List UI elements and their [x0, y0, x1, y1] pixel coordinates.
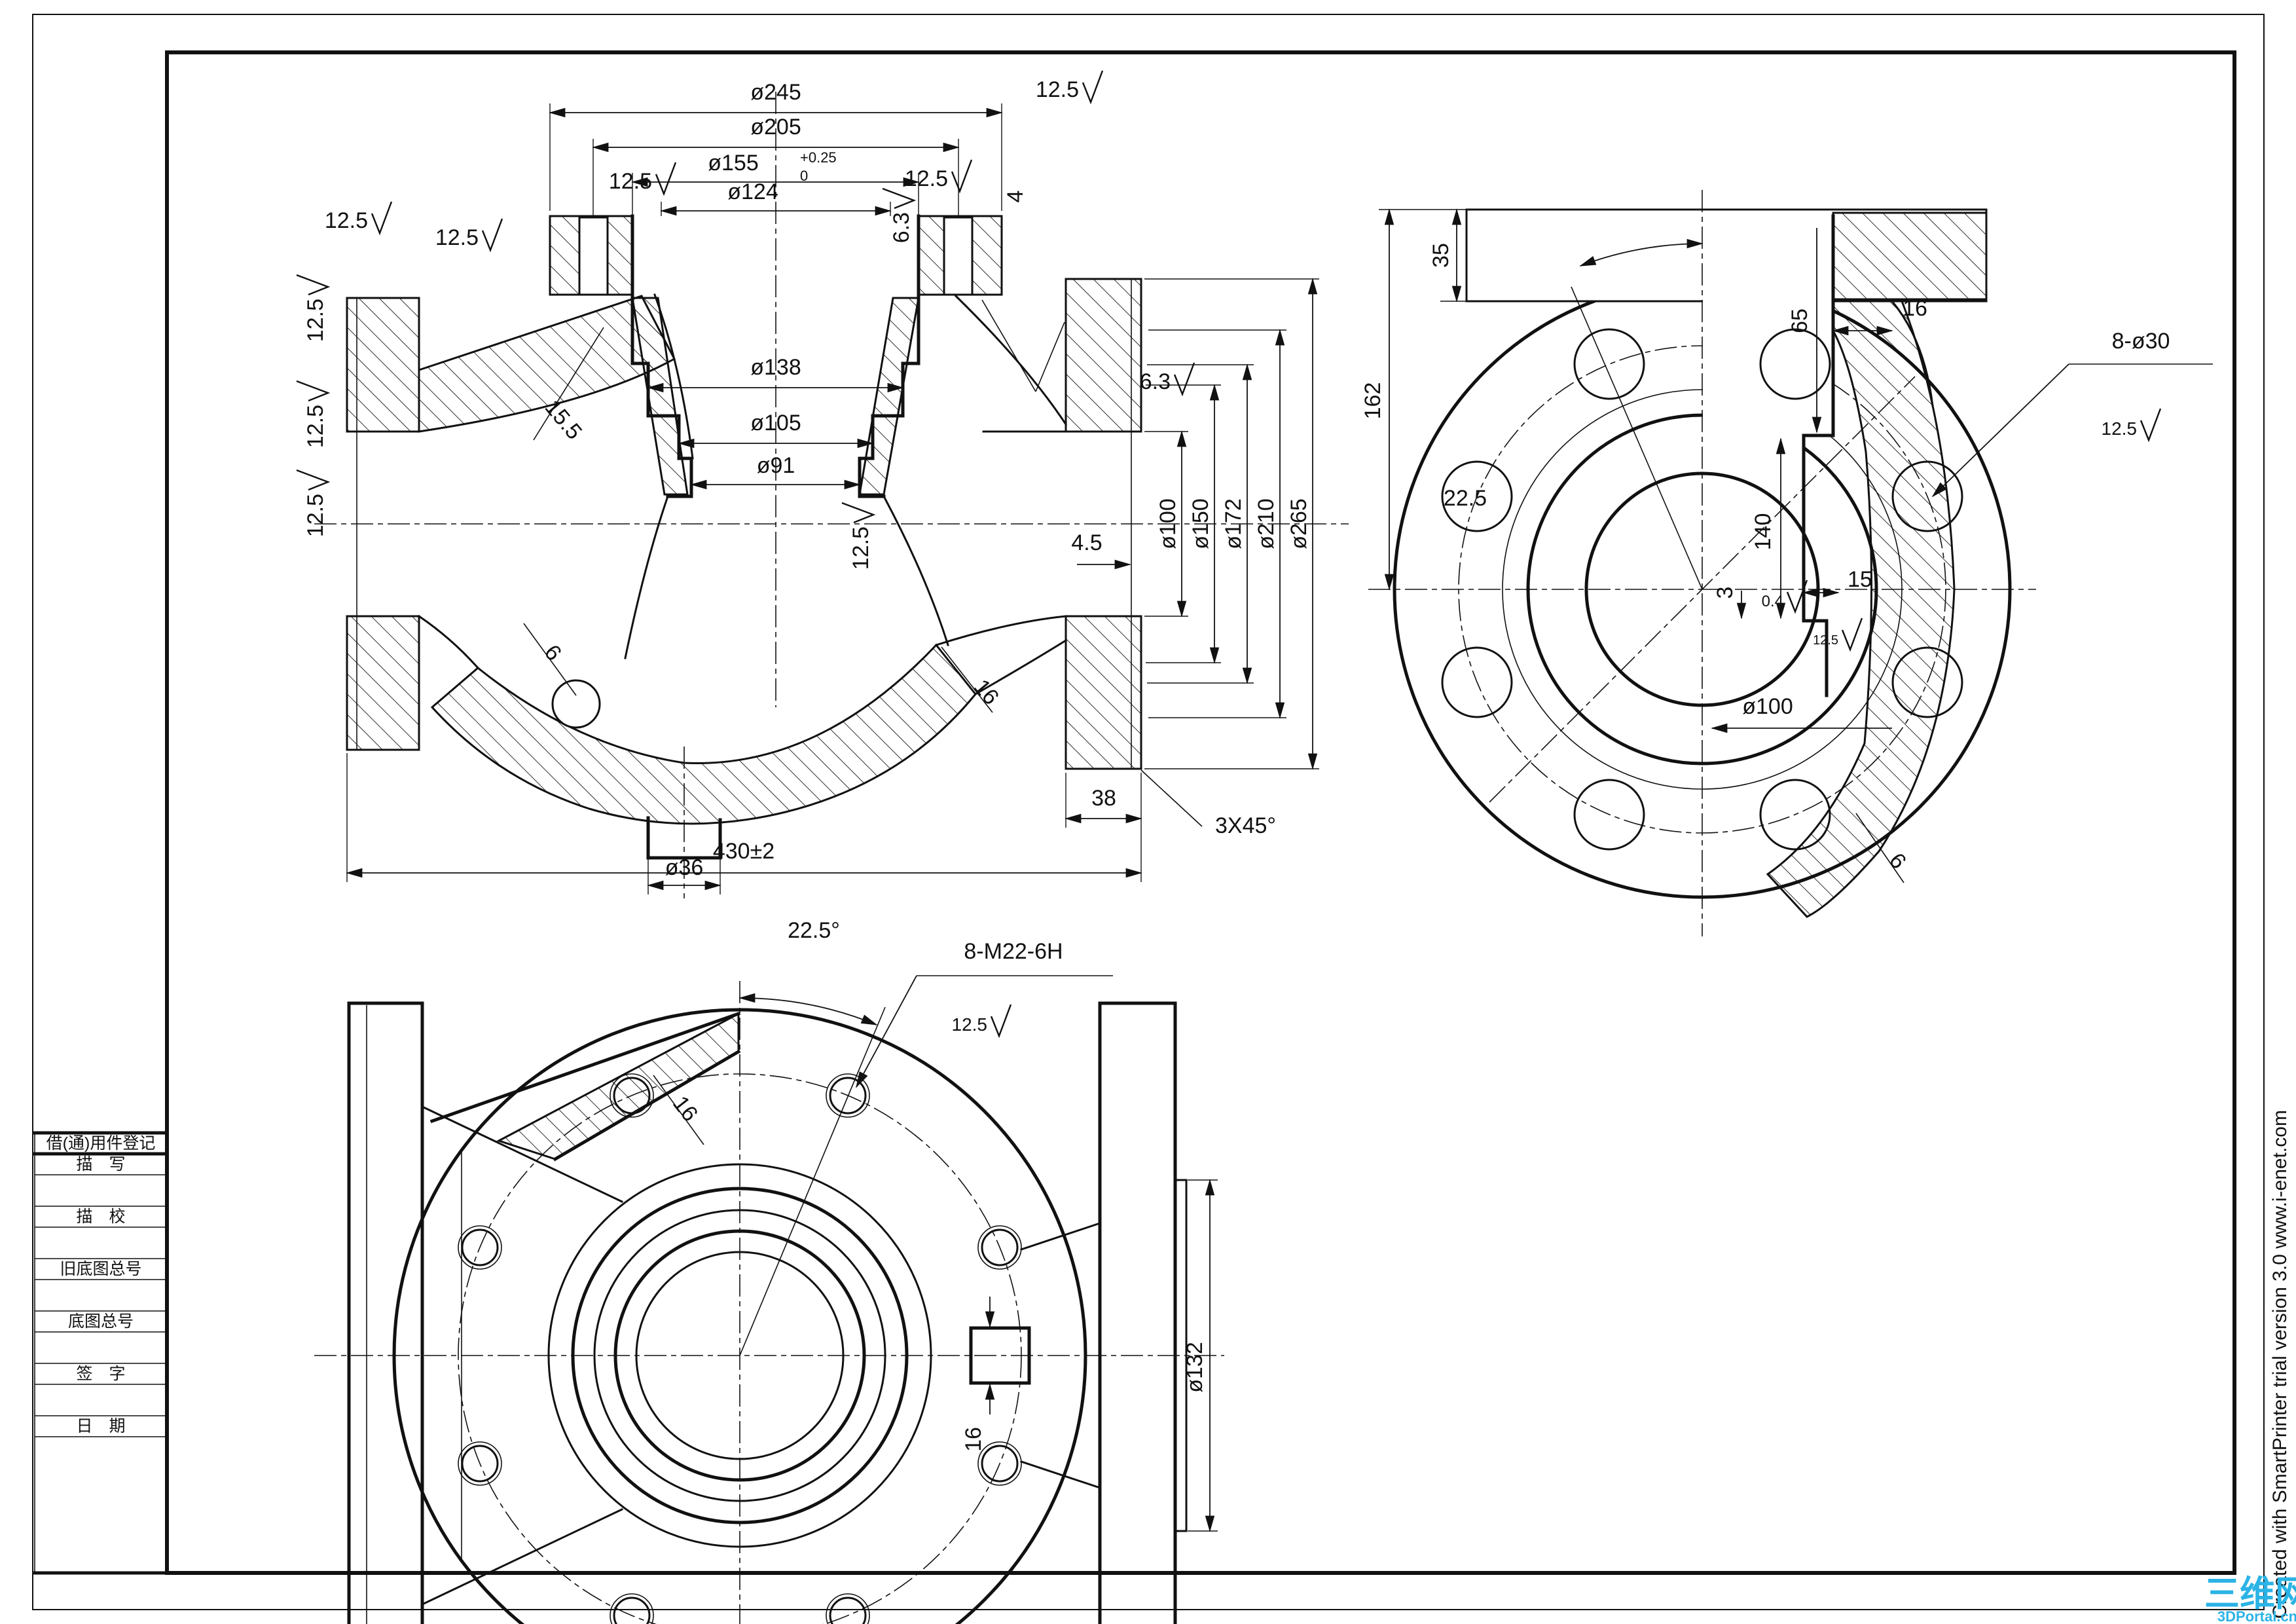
fv-fin-left-3-value: 12.5: [303, 494, 328, 537]
right-flange-upper: [1066, 279, 1141, 432]
fv-dim-d265-value: ø265: [1286, 498, 1311, 549]
fv-fin-flange-top-l-value: 12.5: [609, 169, 652, 194]
top-flange-side-hatch: [1833, 213, 1986, 299]
left-flange-lower: [347, 616, 419, 750]
fv-dim-d105: ø105: [750, 411, 801, 435]
sv-dim-35-value: 35: [1429, 243, 1453, 268]
fv-dim-d210-value: ø210: [1254, 498, 1279, 549]
bv-fin-m22-125-value: 12.5: [952, 1014, 988, 1035]
bv-dim-8-m22-value: 8-M22-6H: [964, 939, 1063, 964]
fv-fin-flange-top-r-value: 12.5: [905, 166, 948, 191]
core-hole: [553, 680, 600, 728]
fv-dim-d124-value: ø124: [727, 179, 778, 204]
sv-dim-15: 15: [1848, 567, 1872, 592]
fv-fin-top-left-1-value: 12.5: [325, 208, 368, 233]
sv-dim-3-value: 3: [1713, 587, 1738, 599]
fv-dim-d155-tol-up: +0.25: [800, 149, 837, 166]
fv-fin-seat-value: 12.5: [848, 526, 873, 570]
sv-fin-holes-125: 12.5: [2102, 409, 2161, 440]
fv-dim-6-wall-value: 6: [539, 640, 566, 665]
fv-dim-d172-value: ø172: [1221, 498, 1246, 549]
bv-dim-d132: ø132: [1182, 1342, 1207, 1393]
bv-dim-16-boss: 16: [961, 1427, 986, 1452]
title-block-row-base-no: 底图总号: [68, 1312, 134, 1331]
sv-dim-d100-value: ø100: [1742, 694, 1793, 719]
bv-dim-22-5deg-value: 22.5°: [788, 918, 840, 943]
fv-dim-d155-tol-up-value: +0.25: [800, 149, 837, 166]
bv-dim-16-wedge: 16: [668, 1092, 702, 1126]
fv-dim-d100: ø100: [1156, 498, 1180, 549]
surface-finish-icon: [883, 189, 914, 208]
fv-dim-d205: ø205: [750, 115, 801, 139]
title-block-row-trace: 描 写: [76, 1155, 125, 1173]
bv-dim-16-boss-value: 16: [961, 1427, 986, 1452]
surface-finish-icon: [1083, 71, 1102, 102]
fv-dim-d150-value: ø150: [1188, 498, 1213, 549]
brand-watermark: 三维网: [2204, 1574, 2296, 1614]
fv-dim-6-wall: 6: [539, 640, 566, 665]
bottom-dimensions: [653, 976, 1218, 1531]
sv-dim-16-value: 16: [1903, 296, 1927, 321]
title-block-row-check: 描 校: [76, 1208, 125, 1226]
fv-fin-bore-63-value: 6.3: [889, 212, 914, 243]
fv-dim-d100-value: ø100: [1156, 498, 1180, 549]
fv-fin-left-3: 12.5: [297, 470, 328, 537]
surface-finish-icon: [483, 219, 502, 250]
surface-finish-icon: [372, 202, 392, 233]
bottom-bowl-shell: [432, 645, 975, 824]
right-pipe-flange: [1100, 1003, 1175, 1624]
hub-wall-right: [860, 298, 919, 494]
bottom-view: 22.5°8-M22-6H12.51616ø132: [314, 918, 1224, 1624]
fv-dim-d138: ø138: [750, 355, 801, 380]
sv-dim-65-value: 65: [1787, 308, 1812, 333]
fv-dim-430-value: 430±2: [713, 839, 774, 864]
sv-dim-65: 65: [1787, 308, 1812, 333]
fv-dim-4-5-value: 4.5: [1071, 530, 1102, 555]
fv-dim-d124: ø124: [727, 179, 778, 204]
fv-dim-d36: ø36: [665, 855, 704, 880]
fv-dim-d172: ø172: [1221, 498, 1246, 549]
fv-fin-face-63-value: 6.3: [1140, 369, 1171, 394]
brand-watermark-sub: 3DPortal.cn: [2217, 1608, 2296, 1624]
surface-finish-icon: [1842, 618, 1862, 650]
fv-dim-d210: ø210: [1254, 498, 1279, 549]
fv-fin-top-right-value: 12.5: [1036, 77, 1079, 102]
surface-finish-icon: [952, 160, 972, 191]
surface-finish-icon: [1175, 363, 1194, 394]
fv-dim-d105-value: ø105: [750, 411, 801, 435]
surface-finish-icon: [2141, 409, 2160, 440]
sv-dim-16: 16: [1903, 296, 1927, 321]
fv-dim-430: 430±2: [713, 839, 774, 864]
sv-dim-140-value: 140: [1751, 513, 1776, 551]
smartprinter-watermark: Created with SmartPrinter trial version …: [2269, 1110, 2291, 1619]
sv-dim-8-d30-value: 8-ø30: [2112, 329, 2170, 354]
title-block: 借(通)用件登记 描 写 描 校 旧底图总号 底图总号 签 字 日 期: [35, 1133, 167, 1573]
fv-dim-d205-value: ø205: [750, 115, 801, 139]
side-section-view: 1623522.5ø10065161401530.412.58-ø3012.56: [1360, 190, 2213, 936]
fv-fin-face-63: 6.3: [1140, 363, 1194, 394]
title-block-row-old-no: 旧底图总号: [60, 1260, 141, 1278]
fv-dim-d150: ø150: [1188, 498, 1213, 549]
fv-dim-d36-value: ø36: [665, 855, 704, 880]
watermarks: Created with SmartPrinter trial version …: [2204, 1110, 2296, 1624]
fv-fin-top-right: 12.5: [1036, 71, 1102, 102]
fv-dim-d155: ø155: [708, 151, 759, 175]
left-pipe-flange: [349, 1003, 422, 1624]
surface-finish-icon: [297, 381, 328, 401]
drawing-canvas: 借(通)用件登记 描 写 描 校 旧底图总号 底图总号 签 字 日 期: [0, 0, 2296, 1624]
sv-dim-d100: ø100: [1742, 694, 1793, 719]
fv-dim-d155-tol-dn-value: 0: [800, 168, 808, 184]
sv-dim-35: 35: [1429, 243, 1453, 268]
sv-fin-step-04-value: 0.4: [1762, 593, 1783, 610]
top-flange-bolt-slot-right: [944, 217, 972, 295]
fv-fin-bore-63: 6.3: [883, 189, 914, 243]
bv-dim-22-5deg: 22.5°: [788, 918, 840, 943]
title-block-header: 借(通)用件登记: [46, 1134, 156, 1153]
sv-dim-140: 140: [1751, 513, 1776, 551]
fv-dim-d138-value: ø138: [750, 355, 801, 380]
sv-dim-6-wall: 6: [1884, 848, 1911, 874]
sv-dim-15-value: 15: [1848, 567, 1872, 592]
fv-dim-d245: ø245: [750, 80, 801, 105]
surface-finish-icon: [656, 162, 676, 194]
top-flange-bolt-slot-left: [579, 217, 608, 295]
fv-dim-4-5: 4.5: [1071, 530, 1102, 555]
front-section-view: ø245ø205ø155+0.250ø124ø138ø105ø9115.5616…: [297, 71, 1349, 898]
fv-dim-d91-value: ø91: [757, 453, 795, 478]
fv-dim-d265: ø265: [1286, 498, 1311, 549]
fv-dim-4-value: 4: [1003, 191, 1028, 203]
bv-dim-d132-value: ø132: [1182, 1342, 1207, 1393]
fv-dim-38: 38: [1091, 786, 1116, 811]
sv-dim-22-5-value: 22.5: [1444, 486, 1487, 511]
fv-fin-seat: 12.5: [842, 503, 873, 570]
sv-dim-162-value: 162: [1360, 382, 1385, 420]
sv-fin-step-125: 12.5: [1813, 618, 1862, 650]
bv-fin-m22-125: 12.5: [952, 1005, 1011, 1036]
fv-dim-3x45-value: 3X45°: [1215, 813, 1276, 838]
fv-dim-d245-value: ø245: [750, 80, 801, 105]
sv-fin-holes-125-value: 12.5: [2102, 418, 2138, 439]
fv-fin-flange-top-r: 12.5: [905, 160, 972, 191]
fv-fin-top-left-2-value: 12.5: [435, 225, 479, 250]
fv-fin-left-2-value: 12.5: [303, 405, 328, 448]
fv-dim-38-value: 38: [1091, 786, 1116, 811]
fv-dim-d91: ø91: [757, 453, 795, 478]
bv-dim-8-m22: 8-M22-6H: [964, 939, 1063, 964]
fv-fin-flange-top-l: 12.5: [609, 162, 676, 194]
title-block-row-date: 日 期: [76, 1417, 125, 1435]
sv-dim-22-5: 22.5: [1444, 486, 1487, 511]
bv-dim-16-wedge-value: 16: [668, 1092, 702, 1126]
fv-dim-d155-value: ø155: [708, 151, 759, 175]
fv-dim-d155-tol-dn: 0: [800, 168, 808, 184]
right-flange-lower: [1066, 616, 1141, 769]
surface-finish-icon: [297, 275, 328, 295]
surface-finish-icon: [842, 503, 873, 523]
fv-fin-top-left-1: 12.5: [325, 202, 392, 233]
title-block-row-sign: 签 字: [76, 1365, 125, 1383]
fv-fin-left-1-value: 12.5: [303, 299, 328, 342]
sv-fin-step-125-value: 12.5: [1813, 633, 1838, 648]
fv-fin-left-2: 12.5: [297, 381, 328, 448]
fv-dim-4: 4: [1003, 191, 1028, 203]
drawing-sheet: 借(通)用件登记 描 写 描 校 旧底图总号 底图总号 签 字 日 期: [0, 0, 2296, 1624]
sv-dim-6-wall-value: 6: [1884, 848, 1911, 874]
left-flange-upper: [347, 298, 419, 432]
sv-dim-162: 162: [1360, 382, 1385, 420]
surface-finish-icon: [991, 1005, 1011, 1036]
sv-dim-3: 3: [1713, 587, 1738, 599]
fv-fin-top-left-2: 12.5: [435, 219, 502, 250]
surface-finish-icon: [297, 470, 328, 490]
sv-dim-8-d30: 8-ø30: [2112, 329, 2170, 354]
fv-fin-left-1: 12.5: [297, 275, 328, 342]
fv-dim-3x45: 3X45°: [1215, 813, 1276, 838]
